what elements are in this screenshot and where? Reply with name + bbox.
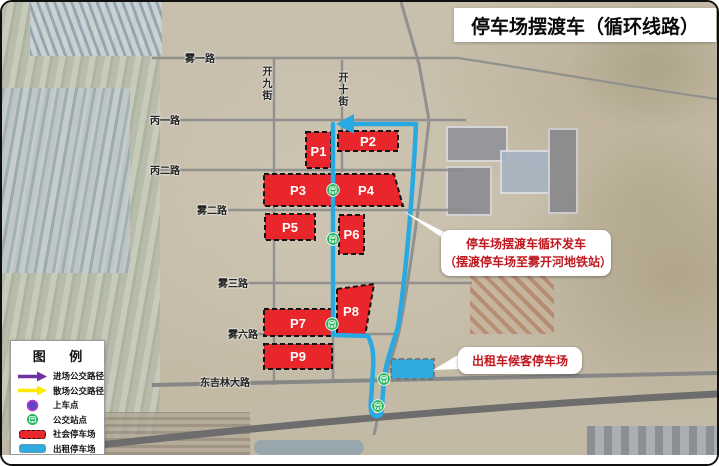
bus-stop-icon bbox=[378, 373, 391, 386]
bottom-margin bbox=[2, 455, 717, 464]
legend-label: 散场公交路径 bbox=[53, 385, 104, 397]
legend-item-boarding-point: 上车点 bbox=[16, 398, 99, 413]
parking-lot-p4-label: P4 bbox=[346, 178, 386, 202]
taxi-lot-swatch bbox=[16, 444, 48, 453]
parking-lot-p9-label: P9 bbox=[264, 344, 332, 369]
road-label-kaijiu: 开九街 bbox=[258, 66, 273, 102]
enter-route-arrow-icon bbox=[16, 371, 48, 382]
road-label-bingyi: 丙一路 bbox=[150, 112, 180, 127]
bus-stop-icon bbox=[327, 233, 340, 246]
legend-item-exit-route: 散场公交路径 bbox=[16, 384, 99, 399]
bus-stop-icon bbox=[16, 413, 48, 426]
taxi-note-pointer bbox=[433, 353, 461, 370]
parking-lot-p3-label: P3 bbox=[278, 178, 318, 202]
bus-stop-icon bbox=[327, 184, 340, 197]
road-label-kaishi: 开十街 bbox=[334, 72, 349, 108]
road-top-right bbox=[458, 58, 717, 99]
map-title: 停车场摆渡车（循环线路） bbox=[471, 12, 699, 39]
legend-item-bus-stop: 公交站点 bbox=[16, 413, 99, 428]
road-label-binger: 丙二路 bbox=[150, 162, 180, 177]
parking-lot-p2-label: P2 bbox=[338, 131, 398, 151]
road-label-wuliu: 雾六路 bbox=[228, 326, 258, 341]
road-label-wusan: 雾三路 bbox=[218, 275, 248, 290]
legend-item-enter-route: 进场公交路径 bbox=[16, 369, 99, 384]
shuttle-map-figure: P1 P2 P3 P4 P5 P6 P7 P8 P9 雾一路 开九街 开十街 丙… bbox=[0, 0, 719, 466]
parking-lot-p5-label: P5 bbox=[265, 214, 315, 240]
road-northeast bbox=[401, 2, 429, 120]
legend-label: 公交站点 bbox=[53, 414, 87, 426]
legend-label: 进场公交路径 bbox=[53, 370, 104, 382]
legend-label: 出租停车场 bbox=[53, 443, 96, 455]
legend-label: 社会停车场 bbox=[53, 428, 96, 440]
exit-route-arrow-icon bbox=[16, 385, 48, 396]
road-label-wuer: 雾二路 bbox=[197, 202, 227, 217]
bus-stop-icon bbox=[372, 400, 385, 413]
parking-lot-p8-label: P8 bbox=[335, 298, 367, 324]
taxi-lot-note: 出租车候客停车场 bbox=[458, 347, 582, 374]
road-label-wuyi: 雾一路 bbox=[185, 50, 215, 65]
shuttle-note-line2: （摆渡停车场至雾开河地铁站） bbox=[444, 253, 608, 271]
shuttle-note-line1: 停车场摆渡车循环发车 bbox=[444, 235, 608, 253]
parking-lot-p1-label: P1 bbox=[306, 134, 331, 168]
highway-bottom bbox=[82, 394, 717, 447]
legend: 图 例 进场公交路径 散场公交路径 上车点 bbox=[10, 340, 105, 455]
legend-label: 上车点 bbox=[53, 399, 79, 411]
social-lot-swatch bbox=[16, 430, 48, 439]
map-title-box: 停车场摆渡车（循环线路） bbox=[454, 8, 716, 42]
parking-lot-p7-label: P7 bbox=[264, 310, 332, 336]
legend-title: 图 例 bbox=[16, 346, 99, 365]
satellite-map: P1 P2 P3 P4 P5 P6 P7 P8 P9 雾一路 开九街 开十街 丙… bbox=[2, 2, 717, 455]
boarding-point-icon bbox=[16, 399, 48, 412]
road-label-dongjilin: 东吉林大路 bbox=[200, 374, 250, 389]
legend-item-taxi-lot: 出租停车场 bbox=[16, 442, 99, 456]
parking-lot-p6-label: P6 bbox=[339, 219, 364, 249]
shuttle-route-note: 停车场摆渡车循环发车 （摆渡停车场至雾开河地铁站） bbox=[441, 230, 611, 276]
taxi-parking-lot-shape bbox=[391, 359, 434, 379]
legend-item-social-lot: 社会停车场 bbox=[16, 427, 99, 442]
